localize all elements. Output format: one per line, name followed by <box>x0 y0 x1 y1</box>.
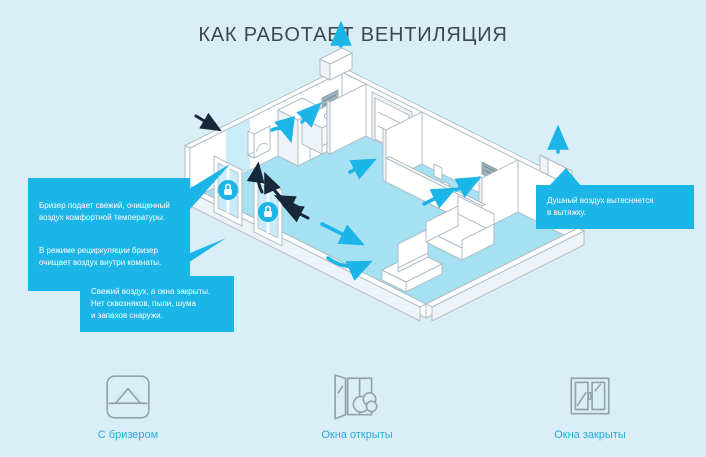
window-closed-icon <box>565 372 615 422</box>
legend-label: Окна закрыты <box>530 429 650 441</box>
legend-label: Окна открыты <box>297 429 417 441</box>
legend-item-windows-open: Окна открыты <box>297 372 417 441</box>
breezer-device-icon <box>103 372 153 422</box>
callout-breezer-p2: В режиме рециркуляции бризер очищает воз… <box>39 245 179 269</box>
legend-label: С бризером <box>68 429 188 441</box>
window-open-cloud-icon <box>332 372 382 422</box>
legend-item-breezer: С бризером <box>68 372 188 441</box>
legend-item-windows-closed: Окна закрыты <box>530 372 650 441</box>
infographic: КАК РАБОТАЕТ ВЕНТИЛЯЦИЯ <box>0 0 706 457</box>
callout-breezer: Бризер подает свежий, очищенный воздух к… <box>28 178 190 291</box>
callout-breezer-p1: Бризер подает свежий, очищенный воздух к… <box>39 200 179 224</box>
callout-exhaust: Душный воздух вытесняется в вытяжку. <box>536 185 694 229</box>
callout-fresh-air: Свежий воздух, а окна закрыты. Нет сквоз… <box>80 276 234 332</box>
